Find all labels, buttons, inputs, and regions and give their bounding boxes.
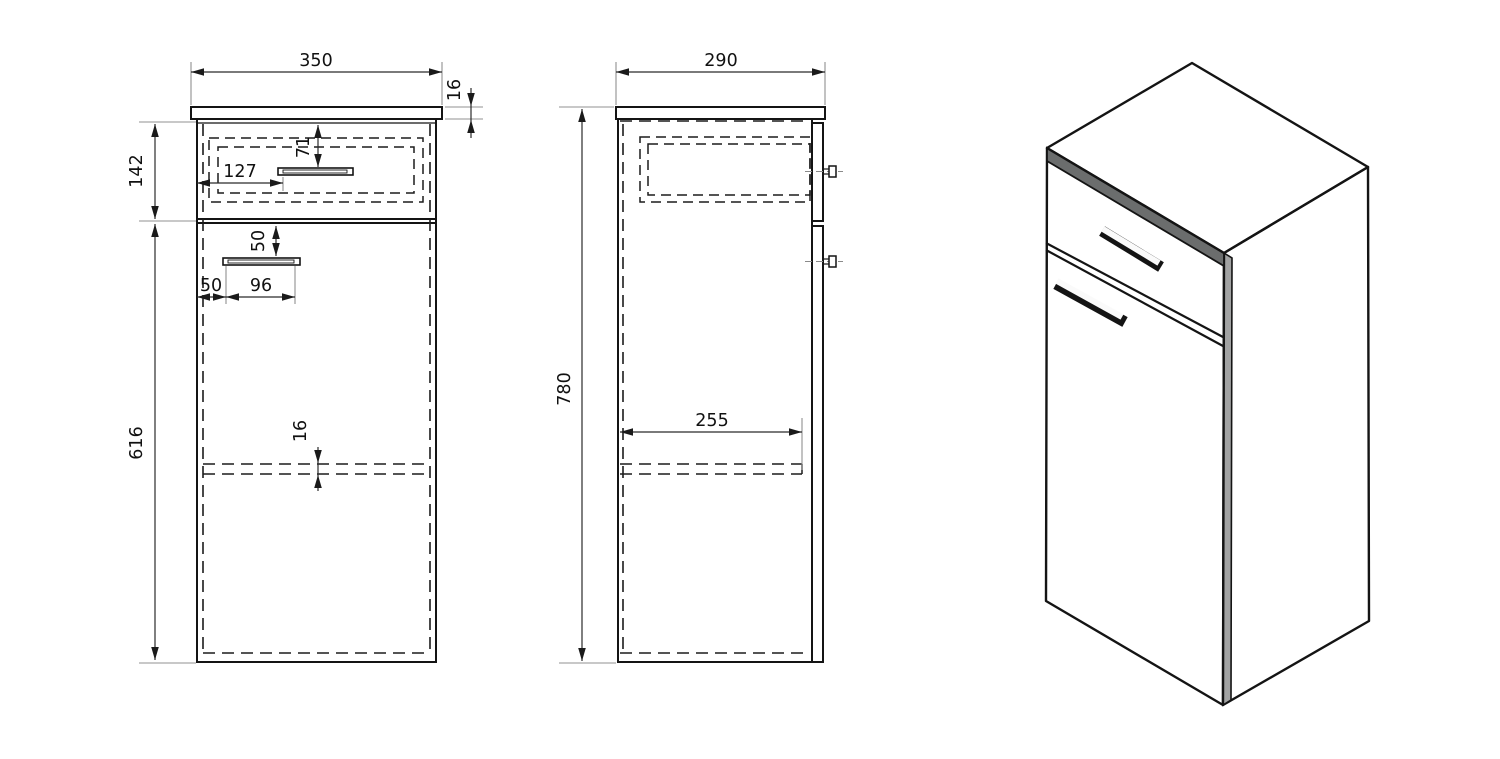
dimension-drawer-height: 142	[127, 122, 196, 221]
dim-label-door-handle-length: 96	[250, 276, 272, 296]
dim-label-shelf-depth: 255	[695, 411, 728, 431]
technical-drawing-page: 350 16 142 616 71	[0, 0, 1500, 759]
dim-label-front-width: 350	[299, 51, 332, 71]
side-view: 290 780 255	[555, 51, 843, 663]
isometric-view	[1046, 63, 1369, 705]
front-drawer-handle	[278, 168, 353, 175]
iso-front-face	[1046, 148, 1224, 705]
dim-label-door-section-height: 616	[127, 426, 147, 459]
dim-label-drawer-handle-from-top: 71	[294, 136, 314, 158]
dim-label-overall-depth: 290	[704, 51, 737, 71]
iso-drawer-handle	[1102, 229, 1161, 267]
front-door-handle	[223, 258, 300, 265]
dim-label-shelf-thickness: 16	[291, 420, 311, 442]
dim-label-drawer-height: 142	[127, 154, 147, 187]
dimension-front-overall-width: 350	[191, 51, 442, 105]
dim-label-countertop-thickness: 16	[445, 79, 465, 101]
side-cabinet-body	[618, 119, 812, 662]
dim-label-overall-height: 780	[555, 372, 575, 405]
dimension-door-section-height: 616	[127, 224, 196, 663]
dim-label-drawer-handle-from-left: 127	[223, 162, 256, 182]
dimension-side-overall-depth: 290	[616, 51, 825, 105]
iso-top-face	[1047, 63, 1368, 253]
side-door-front	[812, 226, 823, 662]
dim-label-door-handle-from-left: 50	[200, 276, 222, 296]
cabinet-technical-drawing: 350 16 142 616 71	[0, 0, 1500, 759]
iso-side-face	[1223, 167, 1369, 705]
dimension-side-overall-height: 780	[555, 107, 616, 663]
dimension-countertop-thickness: 16	[445, 79, 483, 138]
side-countertop	[616, 107, 825, 119]
front-cabinet-body	[197, 119, 436, 662]
dim-label-door-handle-from-divider: 50	[249, 230, 269, 252]
front-view: 350 16 142 616 71	[127, 51, 483, 663]
front-countertop	[191, 107, 442, 119]
